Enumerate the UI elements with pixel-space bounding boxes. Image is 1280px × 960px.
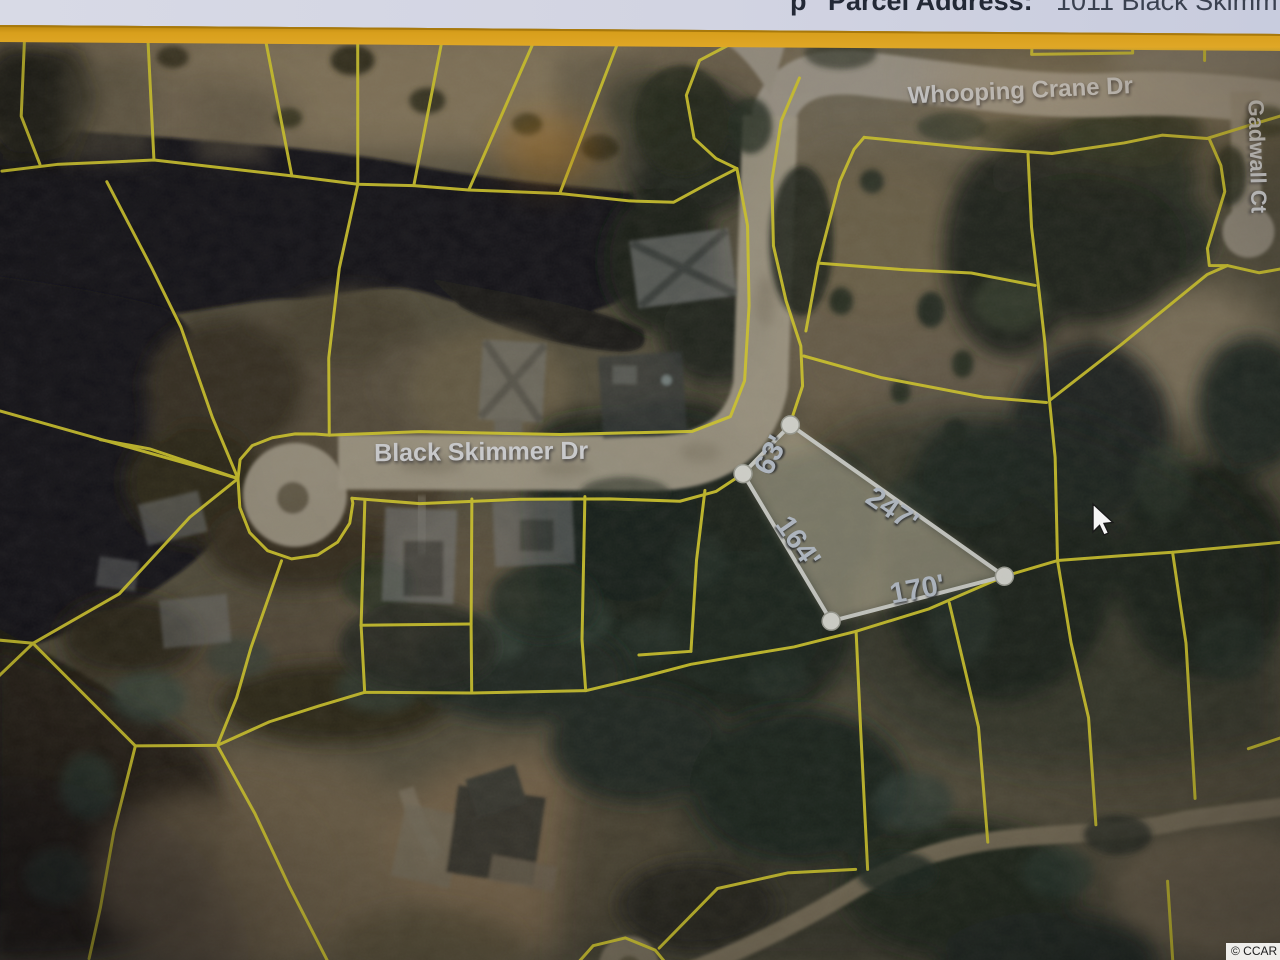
svg-text:p: p (790, 0, 807, 16)
svg-text:© CCAR: © CCAR (1231, 944, 1278, 958)
svg-text:Parcel Address:: Parcel Address: (828, 0, 1033, 16)
svg-text:1011 Black Skimm: 1011 Black Skimm (1056, 0, 1278, 16)
